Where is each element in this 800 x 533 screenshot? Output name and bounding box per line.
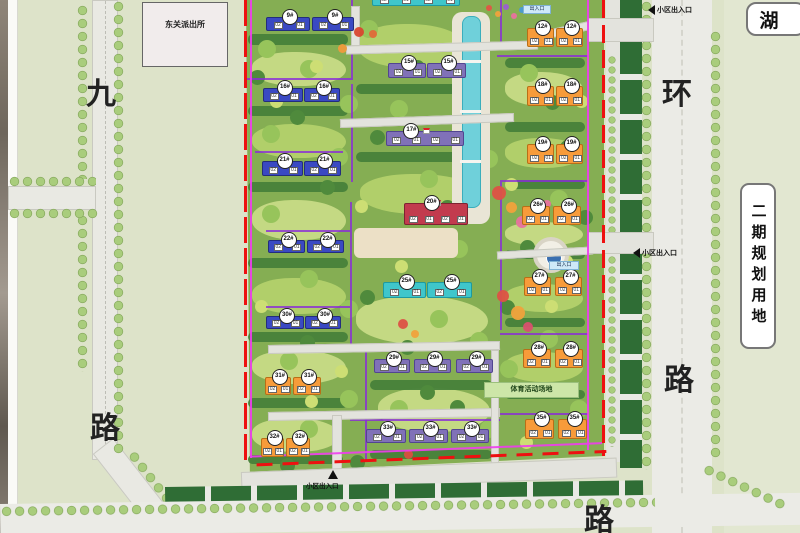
unit-label: 02 <box>559 359 568 366</box>
building-26: 020126# <box>553 206 581 225</box>
unit-label: 02 <box>435 289 444 296</box>
unit-label: 02 <box>559 38 568 45</box>
block-line <box>246 78 351 80</box>
building-badge: 29# <box>469 351 485 367</box>
building-badge: 20# <box>424 195 440 211</box>
unit-label: 01 <box>301 448 310 455</box>
unit-label: 02 <box>527 359 536 366</box>
building-18: 020118# <box>556 86 583 106</box>
magenta-boundary-west <box>250 0 252 458</box>
unit-label: 01 <box>573 359 582 366</box>
building-25: 020125# <box>383 282 426 298</box>
white-margin <box>8 0 18 533</box>
building-badge: 25# <box>399 274 415 290</box>
unit-label: 02 <box>424 0 433 4</box>
building-badge: 16# <box>316 80 332 96</box>
building-9: 02019# <box>266 17 310 31</box>
building-badge: 32# <box>292 430 308 446</box>
playground-blob <box>523 322 533 332</box>
tree-row <box>76 214 89 372</box>
entrance-label-top: 小区出入口 <box>648 5 692 15</box>
hedge-strip <box>505 58 585 68</box>
unit-label: 01 <box>275 448 284 455</box>
building-35: 020135# <box>525 419 554 439</box>
unit-label: 02 <box>392 137 401 144</box>
building-31: 020131# <box>265 377 291 395</box>
unit-label: 01 <box>412 289 421 296</box>
unit-label: 01 <box>289 167 298 174</box>
building-badge: 16# <box>277 80 293 96</box>
building-badge: 22# <box>281 232 297 248</box>
building-badge: 35# <box>534 411 550 427</box>
unit-label: 02 <box>373 434 382 441</box>
hedge-strip <box>370 380 492 390</box>
building-badge: 12# <box>564 20 580 36</box>
block-line <box>500 0 502 46</box>
building-badge: 27# <box>532 269 548 285</box>
playground-blob <box>506 202 517 213</box>
unit-label: 01 <box>476 434 485 441</box>
phase2-label: 二期规划用地 <box>748 203 769 329</box>
hedge-strip <box>356 152 466 162</box>
playground-blob <box>497 290 509 302</box>
unit-label: 02 <box>319 22 328 29</box>
tree-row <box>709 30 722 460</box>
lake-label-box: 湖 <box>746 2 800 36</box>
south-road-char: 路 <box>584 506 614 533</box>
building-19: 020119# <box>556 144 583 164</box>
building-badge: 19# <box>564 136 580 152</box>
playground-blob <box>511 13 517 19</box>
building-21: 020121# <box>304 161 341 176</box>
unit-label: 02 <box>274 22 283 29</box>
bridge <box>460 160 481 163</box>
building-badge: 9# <box>282 9 298 25</box>
unit-label: 02 <box>462 364 471 371</box>
playground-blob <box>492 186 506 200</box>
unit-label: 02 <box>310 93 319 100</box>
building-12: 020112# <box>556 28 583 47</box>
unit-label: 01 <box>540 216 549 223</box>
phase2-label-box: 二期规划用地 <box>740 183 776 349</box>
building-badge: 33# <box>423 421 439 437</box>
building-badge: 29# <box>427 351 443 367</box>
building-29: 020129# <box>456 359 493 373</box>
building-badge: 33# <box>380 421 396 437</box>
unit-label: 02 <box>529 430 538 437</box>
block-line <box>350 202 352 345</box>
building-25: 020125# <box>427 282 472 298</box>
playground-blob <box>398 319 408 329</box>
unit-label: 01 <box>425 216 434 223</box>
unit-label: 01 <box>573 97 582 104</box>
building-15: 020115# <box>388 63 426 78</box>
building-badge: 22# <box>320 232 336 248</box>
block-line <box>255 151 343 153</box>
building-16: 020116# <box>304 88 340 102</box>
building-27: 020127# <box>524 277 551 296</box>
unit-label: 02 <box>530 97 539 104</box>
east-road-char-top: 环 <box>662 80 692 110</box>
playground-blob <box>495 11 501 17</box>
building-29: 020129# <box>414 359 451 373</box>
playground-blob <box>511 306 525 320</box>
unit-label: 02 <box>263 448 272 455</box>
building-18: 020118# <box>527 86 554 106</box>
building-badge: 28# <box>563 341 579 357</box>
entrance-arrow-icon <box>633 248 640 258</box>
entrance-label-text: 小区出入口 <box>306 480 339 490</box>
unit-label: 01 <box>457 289 466 296</box>
unit-label: 01 <box>451 137 460 144</box>
unit-label: 01 <box>402 0 411 4</box>
hedge-strip <box>248 258 348 268</box>
block-line <box>500 333 588 335</box>
unit-label: 02 <box>558 287 567 294</box>
bridge <box>460 110 481 113</box>
building-badge: 28# <box>531 341 547 357</box>
roof-box <box>423 128 430 134</box>
building-badge: 18# <box>564 78 580 94</box>
lawn-patch <box>356 296 488 344</box>
entrance-label-text: 小区出入口 <box>642 248 677 258</box>
building-badge: 26# <box>530 198 546 214</box>
unit-label: 01 <box>393 434 402 441</box>
gate-box-middle: 出入口 <box>549 261 579 270</box>
building-32: 020132# <box>286 438 310 457</box>
lake-label: 湖 <box>759 6 778 33</box>
building-15: 020115# <box>427 63 466 78</box>
block-line <box>266 306 350 308</box>
unit-label: 02 <box>268 386 277 393</box>
lawn-patch <box>252 278 346 314</box>
unit-label: 01 <box>281 386 290 393</box>
building: 02010201 <box>372 0 460 6</box>
building-22: 020122# <box>268 240 305 253</box>
building-16: 020116# <box>263 88 303 102</box>
block-line <box>350 419 500 421</box>
block-line <box>266 230 350 232</box>
unit-label: 01 <box>413 69 422 76</box>
playground-blob <box>503 4 509 10</box>
building-22: 020122# <box>307 240 344 253</box>
building-29: 020129# <box>374 359 410 373</box>
unit-label: 01 <box>571 216 580 223</box>
building-33: 020133# <box>366 429 406 443</box>
tree-row <box>8 207 98 219</box>
hedge-strip <box>248 182 348 192</box>
unit-label: 02 <box>457 434 466 441</box>
entrance-label-bottom: 小区出入口 <box>306 480 339 490</box>
building-badge: 19# <box>535 136 551 152</box>
building-badge: 9# <box>327 9 343 25</box>
building-28: 020128# <box>523 349 551 368</box>
unit-label: 02 <box>270 93 279 100</box>
building-31: 020131# <box>293 377 321 395</box>
unit-label: 01 <box>290 93 299 100</box>
building-badge: 26# <box>561 198 577 214</box>
tree-row <box>112 0 125 455</box>
unit-label: 02 <box>526 216 535 223</box>
entrance-label-text: 小区出入口 <box>657 5 692 15</box>
unit-label: 02 <box>272 320 281 327</box>
unit-label: 02 <box>559 97 568 104</box>
building-28: 020128# <box>555 349 583 368</box>
unit-label: 02 <box>431 137 440 144</box>
block-line <box>351 84 353 182</box>
unit-label: 01 <box>576 430 585 437</box>
building-badge: 31# <box>272 369 288 385</box>
building-26: 020126# <box>522 206 550 225</box>
building-30: 020130# <box>305 316 341 329</box>
unit-label: 01 <box>457 216 466 223</box>
magenta-boundary-east <box>587 0 589 450</box>
unit-label: 02 <box>297 386 306 393</box>
unit-label: 01 <box>573 38 582 45</box>
building-35: 020135# <box>558 419 587 439</box>
building-badge: 18# <box>535 78 551 94</box>
police-station-label: 东关派出所 <box>143 19 227 30</box>
building-9: 02019# <box>312 17 354 31</box>
red-boundary-east <box>602 0 605 456</box>
unit-label: 01 <box>541 359 550 366</box>
sports-ground-label: 体育活动场地 <box>484 382 579 398</box>
unit-label: 01 <box>453 69 462 76</box>
unit-label: 01 <box>544 38 553 45</box>
unit-label: 01 <box>544 97 553 104</box>
building-21: 020121# <box>262 161 303 176</box>
building-badge: 35# <box>567 411 583 427</box>
building-badge: 15# <box>401 55 417 71</box>
lawn-patch <box>252 124 346 158</box>
building-badge: 29# <box>386 351 402 367</box>
unit-label: 02 <box>390 289 399 296</box>
unit-label: 02 <box>420 364 429 371</box>
gate-box-top: 出入口 <box>523 5 551 14</box>
sales-forecourt <box>354 228 458 258</box>
building-badge: 30# <box>279 308 295 324</box>
east-road-char-bottom: 路 <box>664 366 694 396</box>
playground-blob <box>369 30 377 38</box>
unit-label: 01 <box>573 155 582 162</box>
building-badge: 21# <box>277 153 293 169</box>
unit-label: 02 <box>557 216 566 223</box>
unit-label: 02 <box>559 155 568 162</box>
playground-blob <box>338 44 347 53</box>
unit-label: 02 <box>274 244 283 251</box>
unit-label: 02 <box>380 0 389 4</box>
building-badge: 33# <box>464 421 480 437</box>
unit-label: 01 <box>544 155 553 162</box>
unit-label: 02 <box>433 69 442 76</box>
unit-label: 01 <box>340 22 349 29</box>
unit-label: 02 <box>562 430 571 437</box>
building-12: 020112# <box>527 28 554 47</box>
unit-label: 02 <box>530 155 539 162</box>
entrance-arrow-icon <box>648 5 655 15</box>
unit-label: 01 <box>572 287 581 294</box>
unit-label: 02 <box>269 167 278 174</box>
building-17: 0201020117# <box>386 131 464 146</box>
building-badge: 25# <box>444 274 460 290</box>
hedge-strip <box>248 34 348 45</box>
red-boundary-west <box>244 0 247 462</box>
building-33: 020133# <box>451 429 489 443</box>
entrance-road-top <box>588 18 654 42</box>
hedge-strip <box>248 332 348 342</box>
unit-label: 02 <box>380 364 389 371</box>
playground-blob <box>486 5 492 11</box>
building-20: 0201020120# <box>404 203 468 225</box>
building-badge: 15# <box>441 55 457 71</box>
building-27: 020127# <box>555 277 582 296</box>
hedge-strip <box>248 398 348 408</box>
building-badge: 21# <box>317 153 333 169</box>
building-19: 020119# <box>527 144 554 164</box>
hedge-strip <box>248 106 348 116</box>
unit-label: 02 <box>289 448 298 455</box>
unit-label: 02 <box>394 69 403 76</box>
block-line <box>497 55 588 57</box>
building-badge: 32# <box>267 430 283 446</box>
block-line <box>500 180 588 182</box>
unit-label: 01 <box>328 167 337 174</box>
entrance-arrow-icon <box>328 470 338 479</box>
building-32: 020132# <box>261 438 284 457</box>
block-line <box>365 350 367 460</box>
road-centerline <box>105 1 106 459</box>
left-photo-edge <box>0 0 8 533</box>
unit-label: 02 <box>313 244 322 251</box>
unit-label: 02 <box>310 167 319 174</box>
building-badge: 30# <box>317 308 333 324</box>
unit-label: 02 <box>530 38 539 45</box>
playground-blob <box>354 27 364 37</box>
unit-label: 01 <box>543 430 552 437</box>
hedge-strip <box>505 122 585 132</box>
west-road-char-top: 九 <box>86 80 116 110</box>
building-33: 020133# <box>409 429 448 443</box>
tree-row <box>8 175 96 187</box>
west-road-char-bottom: 路 <box>90 414 120 444</box>
building-badge: 12# <box>535 20 551 36</box>
unit-label: 02 <box>409 216 418 223</box>
master-plan-map: 体育活动场地 02019#02019#02010201020115#020115… <box>0 0 800 533</box>
unit-label: 02 <box>441 216 450 223</box>
police-station-box: 东关派出所 <box>142 2 228 67</box>
unit-label: 01 <box>446 0 455 4</box>
unit-label: 02 <box>415 434 424 441</box>
building-badge: 31# <box>301 369 317 385</box>
playground-blob <box>411 330 419 338</box>
building-badge: 27# <box>563 269 579 285</box>
unit-label: 02 <box>527 287 536 294</box>
unit-label: 01 <box>296 22 305 29</box>
building-30: 020130# <box>266 316 304 329</box>
unit-label: 01 <box>311 386 320 393</box>
entrance-label-middle: 小区出入口 <box>633 248 677 258</box>
lawn-patch <box>252 52 346 86</box>
unit-label: 01 <box>541 287 550 294</box>
